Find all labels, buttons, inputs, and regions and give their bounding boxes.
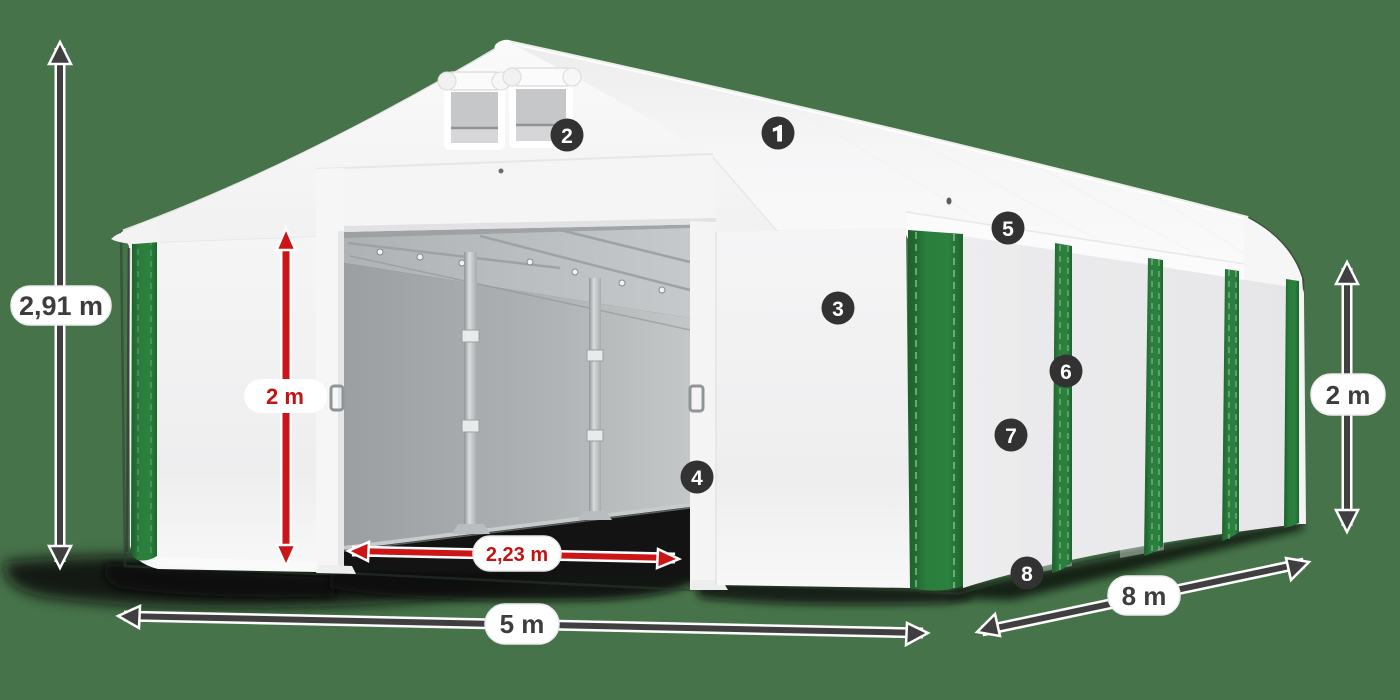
- svg-text:2 m: 2 m: [266, 384, 304, 409]
- svg-text:2 m: 2 m: [1326, 380, 1371, 410]
- svg-text:7: 7: [1005, 425, 1017, 448]
- svg-text:2,91 m: 2,91 m: [19, 291, 103, 321]
- svg-text:4: 4: [691, 467, 703, 490]
- svg-text:3: 3: [832, 298, 844, 321]
- svg-text:6: 6: [1060, 361, 1072, 384]
- svg-text:2: 2: [561, 125, 573, 148]
- svg-text:5 m: 5 m: [500, 609, 545, 639]
- svg-text:5: 5: [1002, 218, 1014, 241]
- svg-text:2,23 m: 2,23 m: [486, 544, 548, 566]
- svg-text:8: 8: [1021, 563, 1033, 586]
- svg-text:8 m: 8 m: [1122, 581, 1167, 611]
